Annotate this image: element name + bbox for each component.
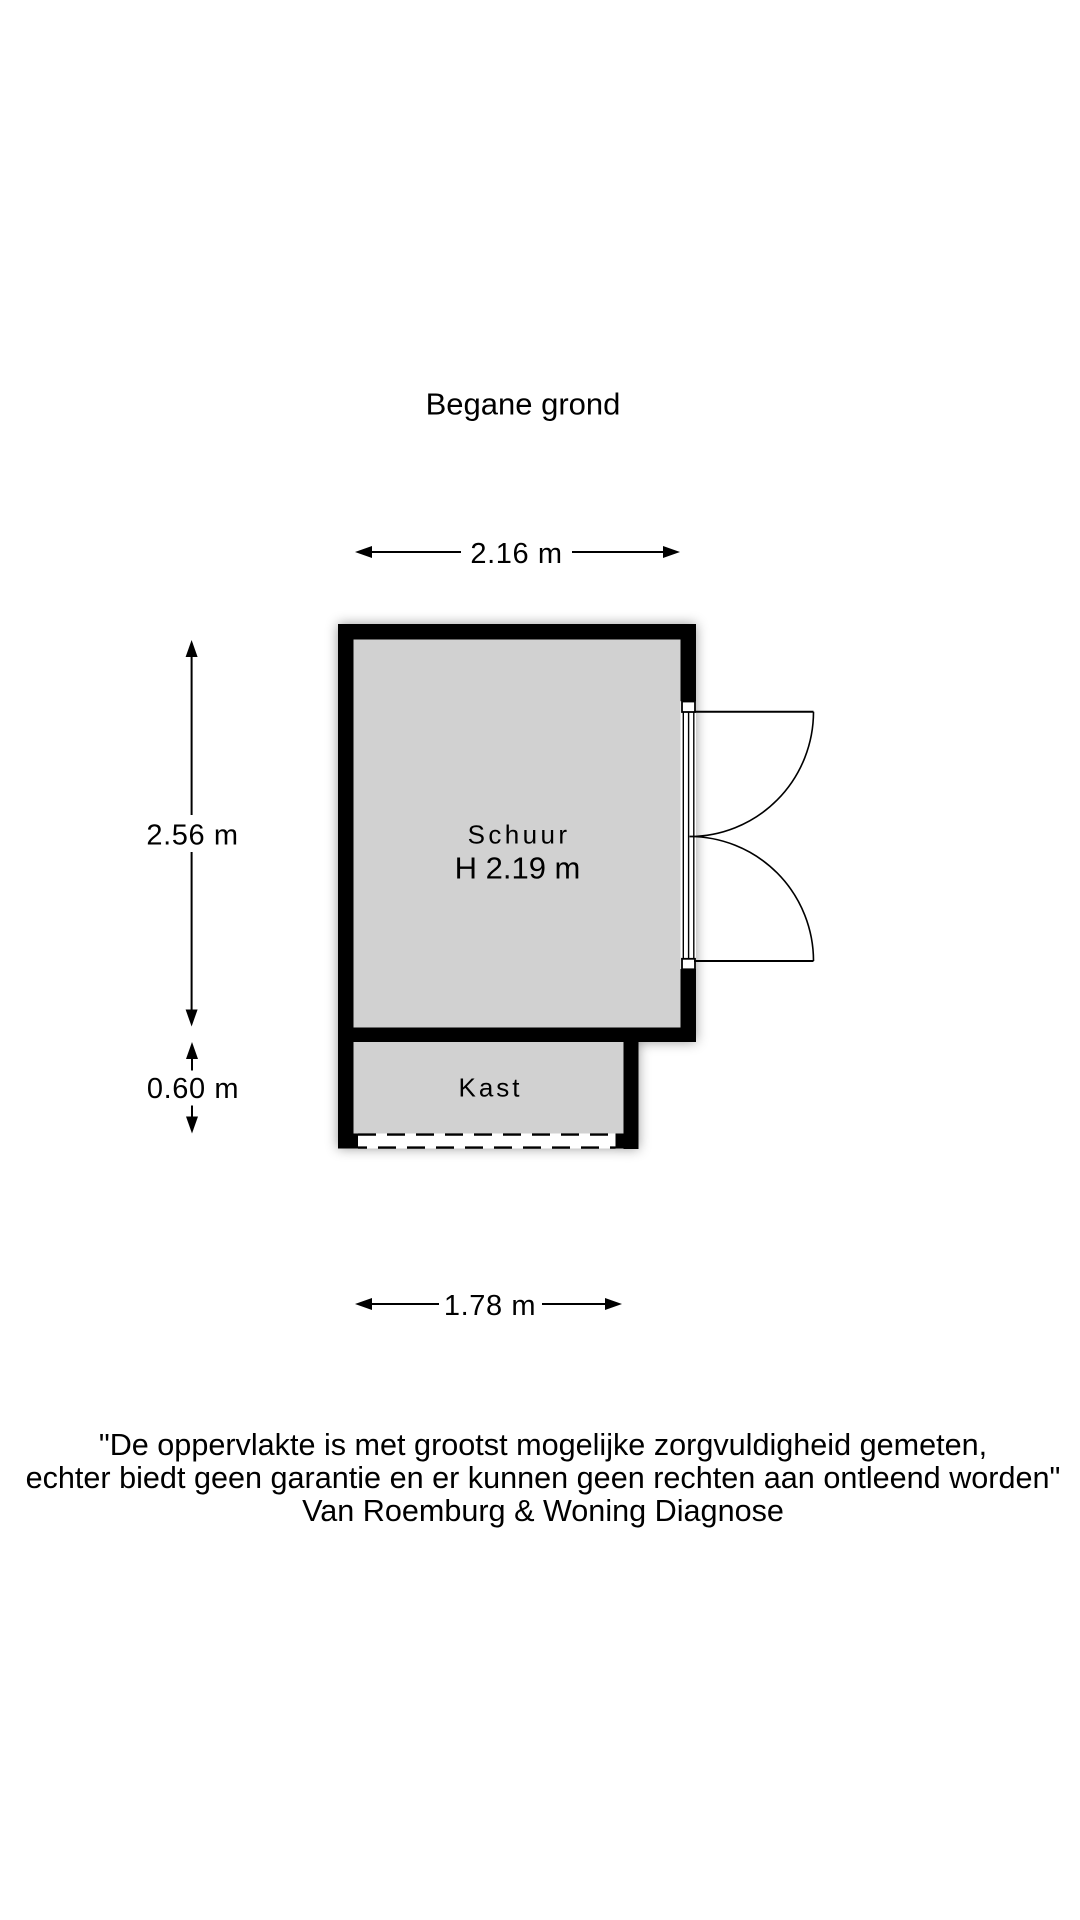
svg-text:Schuur: Schuur: [468, 820, 571, 850]
svg-text:0.60 m: 0.60 m: [147, 1073, 239, 1105]
svg-text:Van Roemburg & Woning Diagnose: Van Roemburg & Woning Diagnose: [302, 1494, 784, 1528]
svg-text:2.16 m: 2.16 m: [470, 538, 562, 570]
svg-text:echter biedt geen garantie en: echter biedt geen garantie en er kunnen …: [26, 1461, 1061, 1495]
svg-text:Begane grond: Begane grond: [426, 387, 621, 422]
svg-text:2.56 m: 2.56 m: [146, 819, 238, 851]
svg-text:H 2.19 m: H 2.19 m: [455, 851, 581, 886]
svg-text:"De oppervlakte is met grootst: "De oppervlakte is met grootst mogelijke…: [99, 1428, 987, 1462]
svg-text:1.78 m: 1.78 m: [444, 1290, 536, 1322]
svg-text:Kast: Kast: [458, 1073, 522, 1103]
